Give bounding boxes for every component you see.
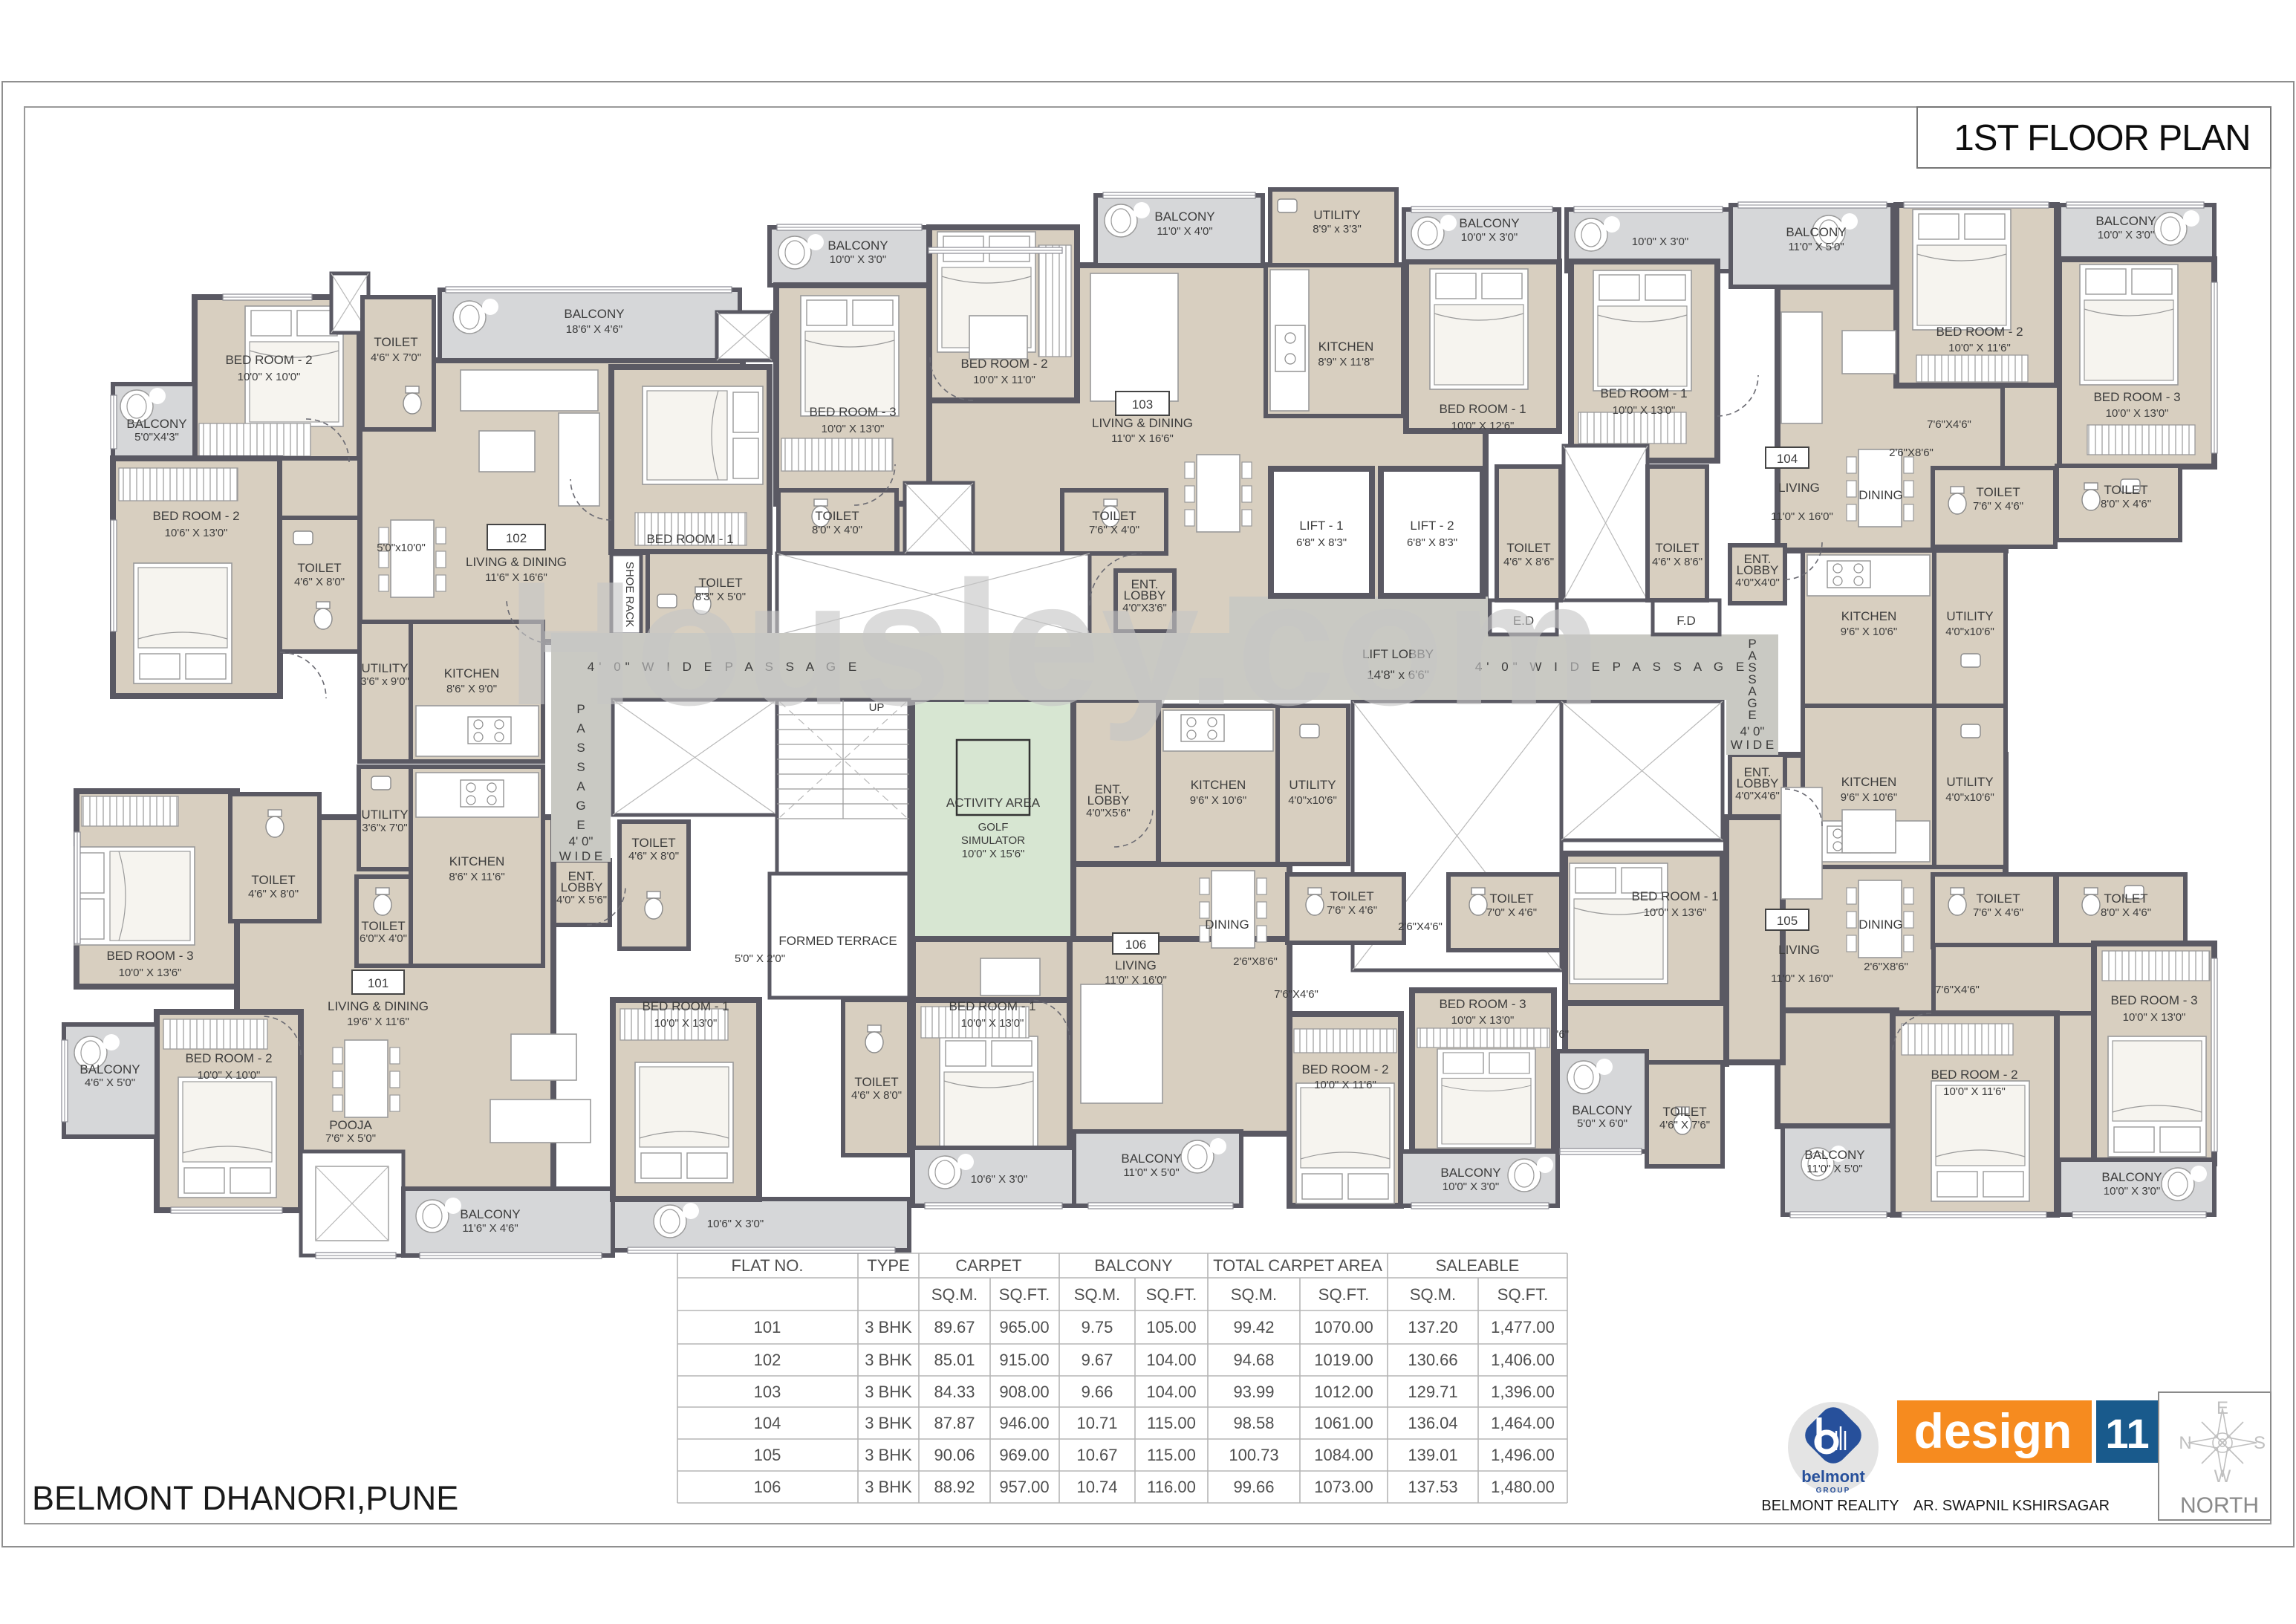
svg-text:4'6" X 8'0": 4'6" X 8'0" <box>628 850 679 863</box>
svg-text:KITCHEN: KITCHEN <box>1191 778 1246 792</box>
svg-text:7'6" X 4'6": 7'6" X 4'6" <box>1973 500 2023 513</box>
svg-text:969.00: 969.00 <box>999 1446 1049 1464</box>
svg-text:BED ROOM - 1: BED ROOM - 1 <box>1600 386 1687 400</box>
svg-text:130.66: 130.66 <box>1408 1351 1457 1369</box>
svg-text:8'6" X 11'6": 8'6" X 11'6" <box>449 871 504 883</box>
svg-text:TOILET: TOILET <box>1092 509 1136 523</box>
svg-text:BELMONT REALITY: BELMONT REALITY <box>1761 1498 1899 1514</box>
svg-text:SQ.M.: SQ.M. <box>1231 1285 1277 1304</box>
svg-text:4'6" X 8'0": 4'6" X 8'0" <box>294 576 345 588</box>
svg-text:LIVING & DINING: LIVING & DINING <box>328 999 429 1013</box>
svg-text:11'0" X 16'6": 11'0" X 16'6" <box>1111 432 1174 445</box>
svg-text:87.87: 87.87 <box>934 1414 975 1432</box>
svg-text:3 BHK: 3 BHK <box>865 1478 912 1496</box>
svg-text:1,406.00: 1,406.00 <box>1491 1351 1555 1369</box>
svg-text:UTILITY: UTILITY <box>361 808 408 822</box>
svg-text:10'0" X 13'0": 10'0" X 13'0" <box>2106 407 2169 420</box>
svg-text:5'0" X 6'0": 5'0" X 6'0" <box>1577 1117 1627 1130</box>
svg-text:BED ROOM - 2: BED ROOM - 2 <box>152 509 239 523</box>
svg-text:KITCHEN: KITCHEN <box>1318 340 1374 354</box>
svg-text:84.33: 84.33 <box>934 1383 975 1401</box>
svg-text:TOILET: TOILET <box>1976 891 2020 906</box>
svg-text:3'6" x 9'0": 3'6" x 9'0" <box>360 675 409 688</box>
svg-text:5'0" X 2'0": 5'0" X 2'0" <box>735 952 785 965</box>
svg-text:105: 105 <box>754 1446 781 1464</box>
svg-text:1012.00: 1012.00 <box>1314 1383 1373 1401</box>
svg-text:W: W <box>2214 1467 2231 1487</box>
svg-text:UTILITY: UTILITY <box>1946 609 1993 623</box>
svg-text:KITCHEN: KITCHEN <box>444 666 500 681</box>
svg-text:E: E <box>576 818 585 832</box>
svg-text:BALCONY: BALCONY <box>564 307 624 321</box>
svg-text:LIVING: LIVING <box>1115 958 1157 972</box>
svg-text:LIVING: LIVING <box>1778 481 1820 495</box>
svg-text:1,480.00: 1,480.00 <box>1491 1478 1555 1496</box>
svg-text:115.00: 115.00 <box>1147 1446 1196 1464</box>
svg-text:8'9" X 11'8": 8'9" X 11'8" <box>1318 356 1373 368</box>
svg-text:9'6" X 10'6": 9'6" X 10'6" <box>1841 626 1897 638</box>
svg-text:UTILITY: UTILITY <box>361 661 408 675</box>
svg-text:4'6" X 8'0": 4'6" X 8'0" <box>851 1089 902 1102</box>
svg-text:S: S <box>576 760 585 774</box>
svg-text:136.04: 136.04 <box>1408 1414 1457 1432</box>
svg-text:9'6" X 10'6": 9'6" X 10'6" <box>1841 791 1897 804</box>
svg-text:115.00: 115.00 <box>1147 1414 1196 1432</box>
svg-text:LOBBY: LOBBY <box>1737 776 1779 790</box>
svg-text:3 BHK: 3 BHK <box>865 1351 912 1369</box>
svg-text:W I D E: W I D E <box>559 849 603 863</box>
svg-text:10'0" X 3'0": 10'0" X 3'0" <box>1632 236 1688 248</box>
svg-text:F.D: F.D <box>1677 614 1696 628</box>
svg-text:UTILITY: UTILITY <box>1313 208 1360 222</box>
svg-text:102: 102 <box>754 1351 781 1369</box>
svg-text:10.67: 10.67 <box>1076 1446 1117 1464</box>
svg-text:TOILET: TOILET <box>1330 889 1373 903</box>
svg-text:KITCHEN: KITCHEN <box>449 854 505 868</box>
svg-text:9.66: 9.66 <box>1082 1383 1113 1401</box>
svg-text:BALCONY: BALCONY <box>126 417 186 431</box>
svg-text:ACTIVITY AREA: ACTIVITY AREA <box>946 796 1041 810</box>
svg-text:103: 103 <box>1132 397 1153 412</box>
svg-text:3'6"x 7'0": 3'6"x 7'0" <box>362 822 407 834</box>
svg-text:SQ.FT.: SQ.FT. <box>999 1285 1050 1304</box>
svg-text:19'6" X 11'6": 19'6" X 11'6" <box>347 1016 409 1028</box>
svg-text:10'0" X 13'0": 10'0" X 13'0" <box>654 1017 718 1030</box>
svg-text:BALCONY: BALCONY <box>1786 225 1846 239</box>
svg-text:137.20: 137.20 <box>1408 1318 1457 1336</box>
svg-text:BALCONY: BALCONY <box>1121 1152 1181 1166</box>
svg-text:BALCONY: BALCONY <box>1572 1103 1632 1117</box>
svg-text:SQ.M.: SQ.M. <box>931 1285 978 1304</box>
svg-text:10'0" X 10'0": 10'0" X 10'0" <box>198 1069 261 1082</box>
svg-text:101: 101 <box>368 976 388 990</box>
svg-text:2'6"X8'6": 2'6"X8'6" <box>1889 446 1934 459</box>
svg-text:1,464.00: 1,464.00 <box>1491 1414 1555 1432</box>
svg-text:DINING: DINING <box>1205 917 1249 932</box>
svg-text:4'6" X 7'6": 4'6" X 7'6" <box>1659 1119 1710 1131</box>
svg-text:NORTH: NORTH <box>2180 1493 2259 1518</box>
svg-text:BED ROOM - 2: BED ROOM - 2 <box>185 1051 272 1065</box>
svg-text:POOJA: POOJA <box>329 1118 372 1132</box>
svg-text:BALCONY: BALCONY <box>460 1207 520 1221</box>
svg-text:10.74: 10.74 <box>1076 1478 1117 1496</box>
svg-text:4'0"x10'6": 4'0"x10'6" <box>1945 791 1994 804</box>
svg-text:11'0" X 5'0": 11'0" X 5'0" <box>1806 1163 1862 1175</box>
svg-text:3 BHK: 3 BHK <box>865 1318 912 1336</box>
svg-text:BALCONY: BALCONY <box>827 238 888 253</box>
svg-text:TOILET: TOILET <box>854 1075 898 1089</box>
svg-text:LIFT - 1: LIFT - 1 <box>1299 519 1343 533</box>
svg-text:1070.00: 1070.00 <box>1314 1318 1373 1336</box>
svg-text:7'6" X 4'6": 7'6" X 4'6" <box>1327 904 1377 917</box>
svg-text:GROUP: GROUP <box>1816 1487 1851 1495</box>
svg-text:SQ.M.: SQ.M. <box>1074 1285 1120 1304</box>
svg-text:4'0"X4'0": 4'0"X4'0" <box>1735 576 1780 589</box>
svg-text:4'0"X5'6": 4'0"X5'6" <box>1086 807 1131 819</box>
svg-text:BALCONY: BALCONY <box>1094 1256 1172 1275</box>
svg-text:139.01: 139.01 <box>1408 1446 1457 1464</box>
svg-text:1,496.00: 1,496.00 <box>1491 1446 1555 1464</box>
svg-text:4'0"X4'6": 4'0"X4'6" <box>1735 790 1780 802</box>
svg-text:7'6"X4'6": 7'6"X4'6" <box>1935 984 1980 996</box>
svg-text:BED ROOM - 3: BED ROOM - 3 <box>2110 993 2197 1007</box>
svg-text:8'0" X 4'6": 8'0" X 4'6" <box>2101 498 2151 510</box>
svg-text:DINING: DINING <box>1858 917 1903 932</box>
svg-text:TOILET: TOILET <box>361 919 405 933</box>
svg-text:CARPET: CARPET <box>955 1256 1021 1275</box>
svg-text:10'0" X 13'0": 10'0" X 13'0" <box>961 1017 1024 1030</box>
svg-text:116.00: 116.00 <box>1147 1478 1196 1496</box>
svg-text:1,396.00: 1,396.00 <box>1491 1383 1555 1401</box>
svg-text:103: 103 <box>754 1383 781 1401</box>
svg-text:99.66: 99.66 <box>1233 1478 1274 1496</box>
svg-text:DINING: DINING <box>1858 488 1903 502</box>
svg-text:94.68: 94.68 <box>1233 1351 1274 1369</box>
svg-text:TOILET: TOILET <box>2104 483 2147 497</box>
svg-text:4'0"x10'6": 4'0"x10'6" <box>1945 626 1994 638</box>
svg-text:85.01: 85.01 <box>934 1351 975 1369</box>
svg-text:102: 102 <box>506 531 527 545</box>
svg-text:UTILITY: UTILITY <box>1289 778 1336 792</box>
svg-text:98.58: 98.58 <box>1233 1414 1274 1432</box>
svg-text:10'0" X 13'0": 10'0" X 13'0" <box>822 423 885 435</box>
svg-text:9.67: 9.67 <box>1082 1351 1113 1369</box>
svg-text:2'6"X8'6": 2'6"X8'6" <box>1864 961 1908 973</box>
svg-text:BED ROOM - 1: BED ROOM - 1 <box>949 999 1035 1013</box>
svg-text:8'0" X 4'6": 8'0" X 4'6" <box>2101 906 2151 919</box>
svg-text:10'6" X 3'0": 10'6" X 3'0" <box>707 1218 764 1230</box>
svg-text:7'6" X 4'0": 7'6" X 4'0" <box>1089 524 1139 536</box>
svg-text:7'6" X 4'6": 7'6" X 4'6" <box>1973 906 2023 919</box>
svg-text:S: S <box>576 741 585 755</box>
svg-text:BED ROOM - 2: BED ROOM - 2 <box>1301 1062 1388 1076</box>
svg-text:10'0" X 3'0": 10'0" X 3'0" <box>830 253 886 266</box>
svg-text:88.92: 88.92 <box>934 1478 975 1496</box>
svg-text:BALCONY: BALCONY <box>79 1062 140 1076</box>
svg-text:4'0" X 5'6": 4'0" X 5'6" <box>556 894 607 906</box>
svg-text:BALCONY: BALCONY <box>1154 210 1214 224</box>
svg-text:BED ROOM - 1: BED ROOM - 1 <box>1631 889 1718 903</box>
svg-text:TOILET: TOILET <box>374 335 417 349</box>
svg-text:TOILET: TOILET <box>815 509 859 523</box>
svg-text:10'0" X 13'0": 10'0" X 13'0" <box>1451 1014 1515 1027</box>
svg-text:104: 104 <box>754 1414 781 1432</box>
svg-text:SIMULATOR: SIMULATOR <box>961 834 1025 847</box>
svg-text:946.00: 946.00 <box>999 1414 1049 1432</box>
svg-text:TYPE: TYPE <box>867 1256 909 1275</box>
svg-text:11'0" X 5'0": 11'0" X 5'0" <box>1788 241 1844 253</box>
svg-text:93.99: 93.99 <box>1233 1383 1274 1401</box>
svg-text:6'0"X 4'0": 6'0"X 4'0" <box>360 932 407 945</box>
svg-text:N: N <box>2179 1433 2191 1453</box>
svg-text:1019.00: 1019.00 <box>1314 1351 1373 1369</box>
svg-text:LOBBY: LOBBY <box>1737 563 1779 577</box>
svg-text:TOILET: TOILET <box>2104 891 2147 906</box>
svg-text:10'0" X 3'0": 10'0" X 3'0" <box>1461 231 1518 244</box>
svg-text:10'0" X 13'6": 10'0" X 13'6" <box>119 967 182 979</box>
svg-text:5'0"X4'3": 5'0"X4'3" <box>134 431 179 444</box>
svg-text:10.71: 10.71 <box>1076 1414 1117 1432</box>
svg-text:BALCONY: BALCONY <box>2101 1170 2162 1184</box>
svg-text:AR. SWAPNIL KSHIRSAGAR: AR. SWAPNIL KSHIRSAGAR <box>1913 1498 2110 1514</box>
svg-text:Housley.com: Housley.com <box>507 545 1603 742</box>
svg-text:1ST FLOOR PLAN: 1ST FLOOR PLAN <box>1954 118 2250 158</box>
svg-text:10'6" X 3'0": 10'6" X 3'0" <box>971 1173 1027 1186</box>
svg-text:SQ.FT.: SQ.FT. <box>1146 1285 1197 1304</box>
svg-text:104.00: 104.00 <box>1146 1351 1196 1369</box>
svg-text:10'0" X 12'6": 10'0" X 12'6" <box>1451 420 1515 432</box>
svg-text:100.73: 100.73 <box>1229 1446 1278 1464</box>
svg-text:10'0" X 10'0": 10'0" X 10'0" <box>238 371 301 383</box>
svg-text:TOILET: TOILET <box>631 836 675 850</box>
svg-text:design: design <box>1914 1403 2072 1458</box>
svg-text:915.00: 915.00 <box>999 1351 1049 1369</box>
svg-text:101: 101 <box>754 1318 781 1336</box>
svg-text:7'6" X 5'0": 7'6" X 5'0" <box>325 1132 376 1145</box>
svg-text:5'0"x10'0": 5'0"x10'0" <box>377 542 426 554</box>
svg-text:2'6"X4'6": 2'6"X4'6" <box>1398 920 1443 933</box>
svg-text:105.00: 105.00 <box>1146 1318 1196 1336</box>
svg-text:TOILET: TOILET <box>1976 485 2020 499</box>
svg-text:BED ROOM - 3: BED ROOM - 3 <box>809 405 896 419</box>
svg-text:BALCONY: BALCONY <box>1440 1166 1500 1180</box>
svg-text:belmont: belmont <box>1801 1467 1865 1486</box>
svg-text:KITCHEN: KITCHEN <box>1841 775 1897 789</box>
svg-text:4'6" X 5'0": 4'6" X 5'0" <box>85 1076 135 1089</box>
svg-text:LIVING: LIVING <box>1778 943 1820 957</box>
svg-text:957.00: 957.00 <box>999 1478 1049 1496</box>
svg-text:4'6" X 8'6": 4'6" X 8'6" <box>1652 556 1703 568</box>
svg-text:7'0" X 4'6": 7'0" X 4'6" <box>1486 906 1537 919</box>
svg-text:BALCONY: BALCONY <box>1459 216 1519 230</box>
svg-text:105: 105 <box>1777 914 1798 928</box>
svg-text:S: S <box>2254 1433 2266 1453</box>
svg-text:11'0" X 16'0": 11'0" X 16'0" <box>1771 972 1833 985</box>
svg-text:10'0" X 15'6": 10'0" X 15'6" <box>962 848 1025 860</box>
svg-text:SQ.FT.: SQ.FT. <box>1318 1285 1369 1304</box>
svg-text:1061.00: 1061.00 <box>1314 1414 1373 1432</box>
svg-text:89.67: 89.67 <box>934 1318 975 1336</box>
svg-text:1084.00: 1084.00 <box>1314 1446 1373 1464</box>
svg-text:9'6" X 10'6": 9'6" X 10'6" <box>1190 794 1246 807</box>
svg-text:104.00: 104.00 <box>1146 1383 1196 1401</box>
svg-text:SQ.M.: SQ.M. <box>1410 1285 1456 1304</box>
svg-text:11: 11 <box>2105 1410 2149 1457</box>
svg-text:BED ROOM - 3: BED ROOM - 3 <box>106 949 193 963</box>
svg-text:1,477.00: 1,477.00 <box>1491 1318 1555 1336</box>
svg-text:A: A <box>576 779 585 793</box>
svg-text:BED ROOM - 2: BED ROOM - 2 <box>1931 1068 2017 1082</box>
svg-text:BED ROOM - 1: BED ROOM - 1 <box>642 999 729 1013</box>
svg-text:3 BHK: 3 BHK <box>865 1446 912 1464</box>
svg-text:9.75: 9.75 <box>1082 1318 1113 1336</box>
svg-text:BELMONT DHANORI,PUNE: BELMONT DHANORI,PUNE <box>32 1479 458 1517</box>
svg-text:10'0" X 11'6": 10'0" X 11'6" <box>1314 1079 1376 1091</box>
svg-text:908.00: 908.00 <box>999 1383 1049 1401</box>
svg-text:10'0" X 11'6": 10'0" X 11'6" <box>1943 1085 2006 1098</box>
svg-text:10'0" X 11'0": 10'0" X 11'0" <box>973 374 1035 386</box>
svg-text:2'6"X8'6": 2'6"X8'6" <box>1233 955 1278 968</box>
svg-text:LOBBY: LOBBY <box>561 880 603 894</box>
svg-text:TOILET: TOILET <box>1655 541 1699 555</box>
svg-text:10'0" X 3'0": 10'0" X 3'0" <box>2104 1185 2160 1198</box>
svg-text:BALCONY: BALCONY <box>1804 1148 1864 1162</box>
svg-text:SQ.FT.: SQ.FT. <box>1497 1285 1548 1304</box>
svg-text:8'9" x 3'3": 8'9" x 3'3" <box>1313 223 1362 236</box>
svg-text:BED ROOM - 1: BED ROOM - 1 <box>646 532 733 546</box>
svg-text:10'0" X 13'0": 10'0" X 13'0" <box>1613 404 1676 417</box>
svg-text:FORMED TERRACE: FORMED TERRACE <box>778 934 897 948</box>
svg-text:104: 104 <box>1777 452 1798 466</box>
svg-text:8'6" X 9'0": 8'6" X 9'0" <box>446 683 497 695</box>
svg-text:11'0" X 16'0": 11'0" X 16'0" <box>1771 510 1833 523</box>
svg-text:LOBBY: LOBBY <box>1087 793 1130 808</box>
svg-text:3 BHK: 3 BHK <box>865 1383 912 1401</box>
svg-text:4'0"x10'6": 4'0"x10'6" <box>1288 794 1337 807</box>
svg-text:W I D E: W I D E <box>1731 738 1775 752</box>
svg-text:GOLF: GOLF <box>978 821 1009 834</box>
svg-text:BED ROOM - 3: BED ROOM - 3 <box>1439 997 1526 1011</box>
svg-text:18'6" X 4'6": 18'6" X 4'6" <box>566 323 622 336</box>
svg-text:4' 0": 4' 0" <box>569 834 593 848</box>
svg-text:LIFT - 2: LIFT - 2 <box>1410 519 1454 533</box>
svg-text:10'0" X 13'6": 10'0" X 13'6" <box>1644 906 1707 919</box>
svg-text:965.00: 965.00 <box>999 1318 1049 1336</box>
svg-text:1073.00: 1073.00 <box>1314 1478 1373 1496</box>
svg-text:11'6" X 4'6": 11'6" X 4'6" <box>462 1222 518 1235</box>
svg-text:BED ROOM - 2: BED ROOM - 2 <box>1936 325 2023 339</box>
svg-text:4' 0": 4' 0" <box>1740 724 1765 738</box>
svg-text:BED ROOM - 2: BED ROOM - 2 <box>225 353 312 367</box>
svg-text:11'0" X 4'0": 11'0" X 4'0" <box>1157 225 1212 238</box>
svg-text:106: 106 <box>1125 938 1146 952</box>
svg-text:BALCONY: BALCONY <box>2095 214 2156 228</box>
svg-text:137.53: 137.53 <box>1408 1478 1457 1496</box>
svg-text:129.71: 129.71 <box>1408 1383 1457 1401</box>
svg-text:3 BHK: 3 BHK <box>865 1414 912 1432</box>
svg-text:BED ROOM - 1: BED ROOM - 1 <box>1439 402 1526 416</box>
svg-text:TOILET: TOILET <box>297 561 341 575</box>
svg-text:TOILET: TOILET <box>1662 1105 1706 1119</box>
svg-text:UTILITY: UTILITY <box>1946 775 1993 789</box>
svg-text:TOILET: TOILET <box>251 873 295 887</box>
svg-text:4'6" X 7'0": 4'6" X 7'0" <box>371 351 421 364</box>
svg-text:90.06: 90.06 <box>934 1446 975 1464</box>
svg-text:7'6"X4'6": 7'6"X4'6" <box>1274 988 1318 1001</box>
svg-text:10'6" X 13'0": 10'6" X 13'0" <box>165 527 228 539</box>
svg-text:BED ROOM - 3: BED ROOM - 3 <box>2093 390 2180 404</box>
svg-text:11'0" X 5'0": 11'0" X 5'0" <box>1123 1166 1179 1179</box>
svg-text:99.42: 99.42 <box>1233 1318 1274 1336</box>
svg-text:KITCHEN: KITCHEN <box>1841 609 1897 623</box>
svg-text:10'0" X 13'0": 10'0" X 13'0" <box>2123 1011 2186 1024</box>
svg-text:10'0" X 3'0": 10'0" X 3'0" <box>1443 1180 1499 1193</box>
svg-text:10'0" X 3'0": 10'0" X 3'0" <box>2098 229 2154 241</box>
svg-text:FLAT NO.: FLAT NO. <box>732 1256 804 1275</box>
svg-text:SALEABLE: SALEABLE <box>1436 1256 1520 1275</box>
svg-text:G: G <box>576 799 585 813</box>
svg-text:LIVING & DINING: LIVING & DINING <box>1092 416 1193 430</box>
svg-text:8'0" X 4'0": 8'0" X 4'0" <box>812 524 862 536</box>
svg-text:E: E <box>1748 708 1756 722</box>
svg-text:106: 106 <box>754 1478 781 1496</box>
svg-text:10'0" X 11'6": 10'0" X 11'6" <box>1948 342 2011 354</box>
svg-text:TOTAL CARPET AREA: TOTAL CARPET AREA <box>1213 1256 1382 1275</box>
svg-text:E: E <box>2217 1398 2228 1418</box>
svg-text:7'6"X4'6": 7'6"X4'6" <box>1927 418 1971 431</box>
svg-text:TOILET: TOILET <box>1489 891 1533 906</box>
svg-text:4'6" X 8'0": 4'6" X 8'0" <box>248 888 299 900</box>
